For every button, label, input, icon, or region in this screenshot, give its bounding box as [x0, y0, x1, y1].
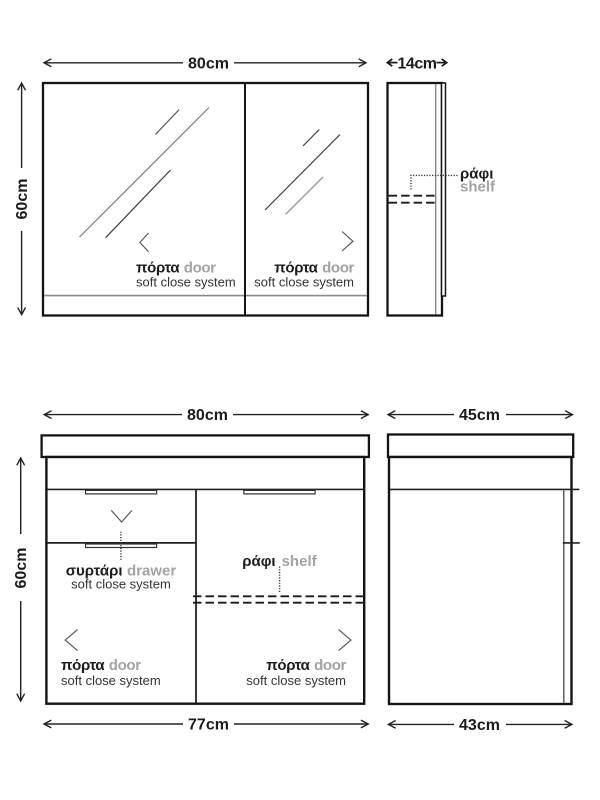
svg-text:πόρταdoor: πόρταdoor — [61, 657, 141, 674]
svg-text:soft close system: soft close system — [71, 576, 171, 591]
svg-text:60cm: 60cm — [13, 548, 30, 589]
svg-text:shelf: shelf — [460, 179, 496, 196]
svg-text:45cm: 45cm — [459, 407, 500, 424]
svg-text:soft close system: soft close system — [246, 673, 346, 688]
svg-text:soft close system: soft close system — [254, 275, 354, 290]
svg-text:14cm: 14cm — [398, 55, 437, 72]
svg-text:80cm: 80cm — [187, 407, 228, 424]
svg-text:77cm: 77cm — [188, 717, 229, 734]
svg-text:soft close system: soft close system — [136, 275, 236, 290]
svg-text:πόρταdoor: πόρταdoor — [266, 657, 346, 674]
svg-text:80cm: 80cm — [188, 55, 229, 72]
svg-text:60cm: 60cm — [14, 179, 31, 220]
svg-text:43cm: 43cm — [459, 717, 500, 734]
svg-text:soft close system: soft close system — [61, 673, 161, 688]
